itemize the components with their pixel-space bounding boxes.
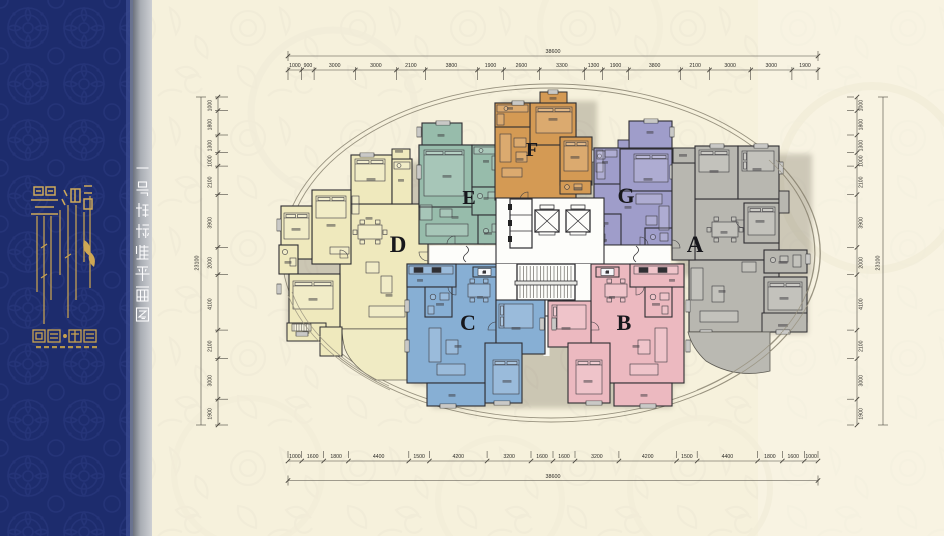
- svg-text:C: C: [460, 310, 476, 335]
- svg-text:3000: 3000: [370, 63, 382, 69]
- svg-text:3000: 3000: [329, 63, 341, 69]
- svg-text:1800: 1800: [208, 119, 214, 131]
- svg-text:3000: 3000: [766, 63, 778, 69]
- svg-text:4200: 4200: [642, 454, 654, 460]
- svg-text:1000: 1000: [208, 155, 214, 167]
- svg-text:2100: 2100: [405, 63, 417, 69]
- svg-text:2000: 2000: [208, 257, 214, 269]
- svg-text:1900: 1900: [485, 63, 497, 69]
- svg-text:38600: 38600: [546, 49, 561, 55]
- svg-text:B: B: [617, 310, 632, 335]
- svg-text:2100: 2100: [208, 340, 214, 352]
- svg-text:1000: 1000: [208, 100, 214, 112]
- svg-text:3900: 3900: [208, 217, 214, 229]
- svg-text:1600: 1600: [307, 454, 319, 460]
- svg-text:3300: 3300: [556, 63, 568, 69]
- svg-text:3900: 3900: [859, 217, 865, 229]
- svg-text:3200: 3200: [591, 454, 603, 460]
- svg-text:1000: 1000: [805, 454, 817, 460]
- svg-text:4400: 4400: [373, 454, 385, 460]
- svg-text:1600: 1600: [558, 454, 570, 460]
- svg-text:1300: 1300: [208, 140, 214, 152]
- svg-text:A: A: [687, 232, 704, 257]
- svg-text:1800: 1800: [859, 119, 865, 131]
- svg-text:1000: 1000: [859, 100, 865, 112]
- svg-text:1900: 1900: [610, 63, 622, 69]
- svg-text:2100: 2100: [208, 176, 214, 188]
- svg-text:4400: 4400: [722, 454, 734, 460]
- svg-text:2100: 2100: [859, 176, 865, 188]
- svg-text:2600: 2600: [516, 63, 528, 69]
- svg-text:4100: 4100: [859, 298, 865, 310]
- svg-text:1600: 1600: [536, 454, 548, 460]
- svg-text:1600: 1600: [788, 454, 800, 460]
- svg-text:2000: 2000: [859, 257, 865, 269]
- svg-text:2100: 2100: [859, 340, 865, 352]
- svg-text:3000: 3000: [724, 63, 736, 69]
- svg-text:4100: 4100: [208, 298, 214, 310]
- svg-text:1800: 1800: [764, 454, 776, 460]
- svg-text:1500: 1500: [681, 454, 693, 460]
- svg-text:3800: 3800: [446, 63, 458, 69]
- svg-text:1900: 1900: [799, 63, 811, 69]
- svg-text:1000: 1000: [289, 63, 301, 69]
- svg-text:1800: 1800: [330, 454, 342, 460]
- svg-text:1000: 1000: [289, 454, 301, 460]
- svg-text:3200: 3200: [503, 454, 515, 460]
- svg-text:4200: 4200: [453, 454, 465, 460]
- svg-text:3000: 3000: [859, 375, 865, 387]
- svg-text:D: D: [390, 232, 407, 257]
- svg-text:23100: 23100: [876, 256, 882, 271]
- svg-text:1900: 1900: [859, 408, 865, 420]
- svg-text:1000: 1000: [859, 155, 865, 167]
- svg-text:1900: 1900: [208, 408, 214, 420]
- svg-text:3000: 3000: [208, 375, 214, 387]
- svg-text:2100: 2100: [689, 63, 701, 69]
- svg-text:38600: 38600: [546, 474, 561, 480]
- svg-text:3800: 3800: [649, 63, 661, 69]
- svg-text:1300: 1300: [859, 140, 865, 152]
- svg-text:F: F: [526, 139, 538, 161]
- svg-text:900: 900: [304, 63, 313, 69]
- svg-text:1500: 1500: [413, 454, 425, 460]
- svg-text:1300: 1300: [588, 63, 600, 69]
- svg-text:G: G: [617, 183, 634, 208]
- svg-text:E: E: [462, 187, 475, 209]
- svg-text:23100: 23100: [195, 256, 201, 271]
